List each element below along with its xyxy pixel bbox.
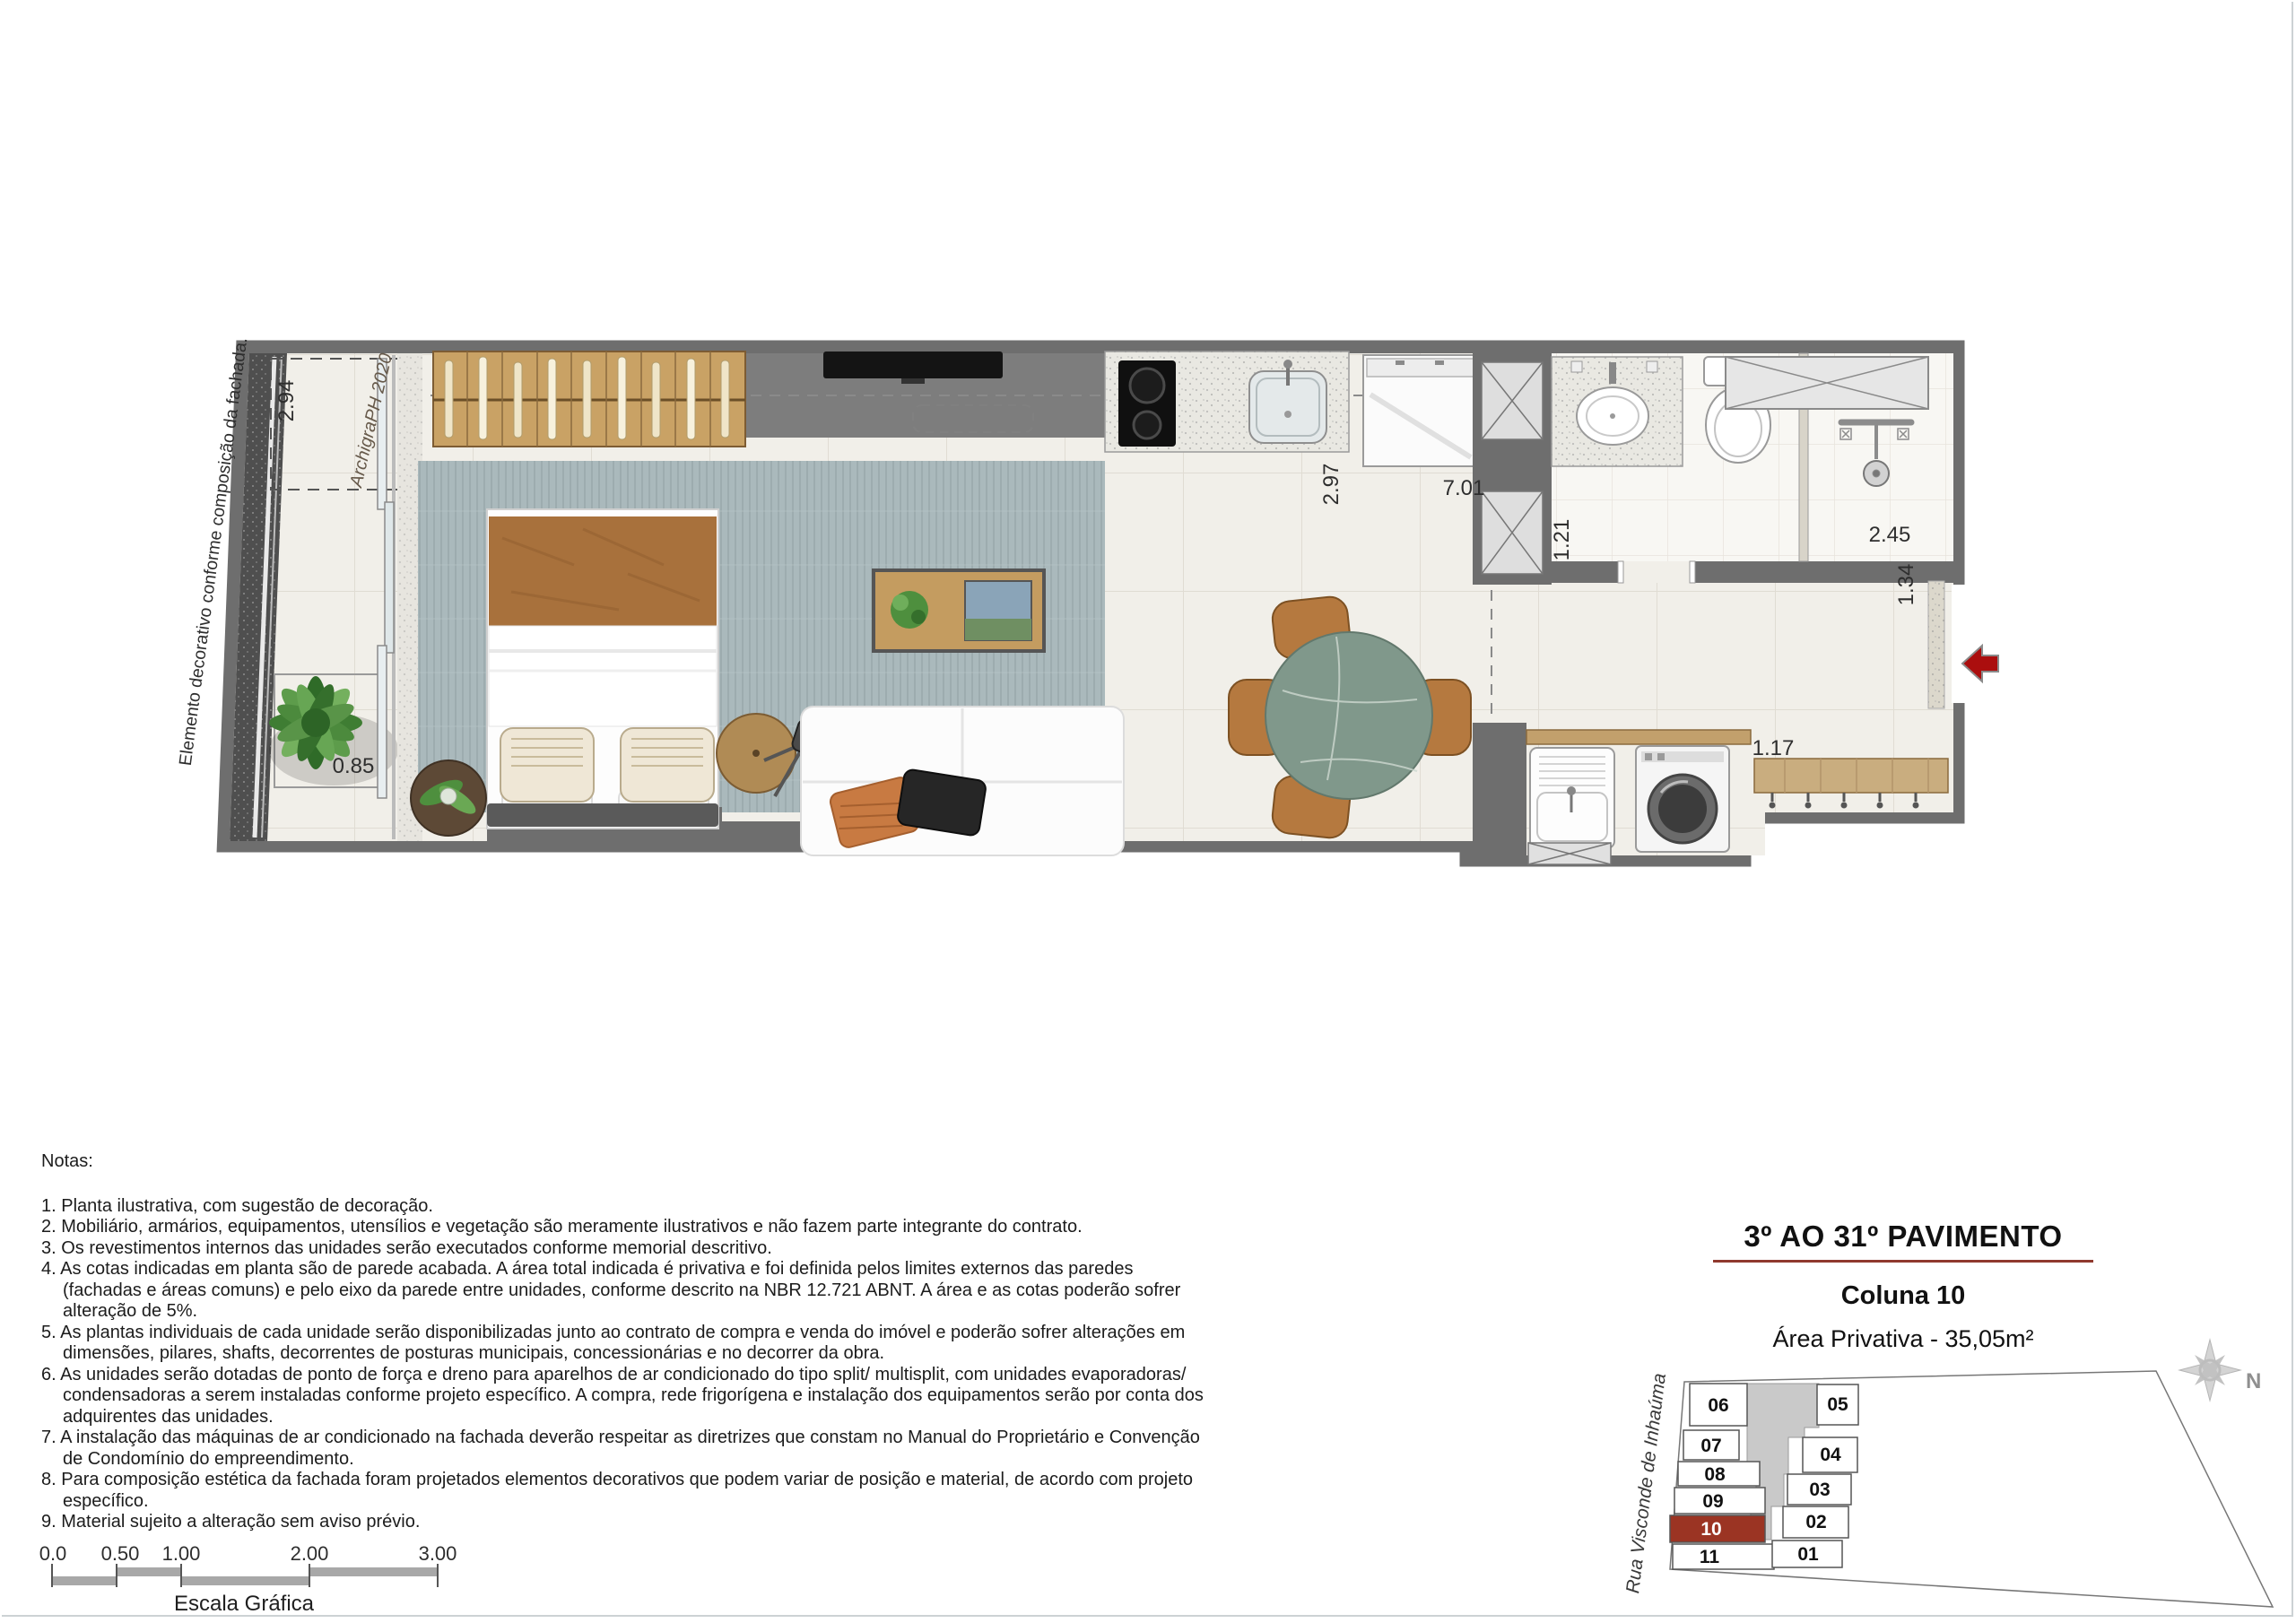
title-underline <box>1713 1260 2093 1263</box>
scale-label: 3.00 <box>419 1542 457 1565</box>
key-unit-11 <box>1673 1544 1774 1569</box>
floor-plan-sheet: 2.94 0.85 2.97 7.01 1.21 2.45 1.34 1.17 … <box>0 0 2296 1623</box>
north-label: N <box>2246 1369 2261 1393</box>
column-label: Coluna 10 <box>1711 1281 2095 1311</box>
wardrobe <box>433 352 745 447</box>
bed-pillow <box>500 728 594 802</box>
bathroom <box>1552 353 1953 583</box>
shaft-box <box>1482 491 1543 574</box>
dim-balcony-box: 2.94 <box>274 380 299 422</box>
note-item: 3. Os revestimentos internos das unidade… <box>41 1238 1207 1260</box>
unit-plan: 2.94 0.85 2.97 7.01 1.21 2.45 1.34 1.17 … <box>176 336 1998 877</box>
north-compass-icon <box>2179 1340 2240 1401</box>
side-table <box>411 760 486 836</box>
street-label: Rua Visconde de Inhaúma <box>1622 1372 1670 1594</box>
scale-bar: 0.0 0.50 1.00 2.00 3.00 Escala Gráfica <box>39 1542 457 1616</box>
info-panel: 3º AO 31º PAVIMENTO Coluna 10 Área Priva… <box>1711 1219 2095 1353</box>
scale-label: 2.00 <box>291 1542 329 1565</box>
note-item: 4. As cotas indicadas em planta são de p… <box>41 1259 1207 1323</box>
entry-reveal-texture <box>1928 581 1944 708</box>
dining-table <box>1265 632 1432 799</box>
dim-shower: 2.45 <box>1869 523 1911 547</box>
private-area-label: Área Privativa - 35,05m² <box>1711 1325 2095 1353</box>
key-unit-label: 08 <box>1704 1464 1726 1485</box>
laundry-shelf <box>1526 730 1751 744</box>
notes-block: Notas: 1. Planta ilustrativa, com sugest… <box>41 1151 1207 1533</box>
notes-heading: Notas: <box>41 1151 1207 1173</box>
scale-label: 1.00 <box>162 1542 201 1565</box>
refrigerator <box>1363 355 1478 466</box>
scale-label: 0.0 <box>39 1542 67 1565</box>
closet-box <box>1726 357 1928 409</box>
bed-pillow <box>621 728 714 802</box>
note-item: 9. Material sujeito a alteração sem avis… <box>41 1512 1207 1533</box>
balcony-sliding-door <box>378 353 422 841</box>
note-item: 5. As plantas individuais de cada unidad… <box>41 1323 1207 1365</box>
key-unit-label: 11 <box>1700 1547 1720 1567</box>
key-unit-label: 07 <box>1700 1436 1721 1456</box>
key-plan: 06 07 08 09 10 11 05 04 03 02 01 Rua Vis… <box>1622 1340 2273 1607</box>
scale-caption: Escala Gráfica <box>174 1592 315 1616</box>
key-unit-label: 05 <box>1827 1394 1848 1415</box>
key-unit-label: 01 <box>1797 1544 1819 1565</box>
entry-opening <box>1952 585 1968 703</box>
washing-machine <box>1636 746 1729 852</box>
laundry <box>1473 723 1751 866</box>
bathroom-vanity <box>1552 357 1683 466</box>
shaft-box <box>1482 362 1543 439</box>
sofa-pillow-black <box>897 768 987 837</box>
shaft-box <box>1528 843 1611 864</box>
key-unit-label: 03 <box>1809 1480 1830 1500</box>
scale-label: 0.50 <box>101 1542 140 1565</box>
key-unit-label: 04 <box>1820 1445 1841 1465</box>
kitchen-counter <box>1105 352 1349 452</box>
kitchen-sink <box>1249 360 1326 443</box>
tv <box>823 352 1003 378</box>
key-unit-label: 09 <box>1702 1491 1723 1512</box>
floor-range-title: 3º AO 31º PAVIMENTO <box>1711 1219 2095 1254</box>
key-unit-label: 02 <box>1805 1512 1826 1532</box>
note-item: 2. Mobiliário, armários, equipamentos, u… <box>41 1217 1207 1238</box>
dim-length: 7.01 <box>1443 476 1485 500</box>
tv-console <box>874 570 1044 651</box>
note-item: 6. As unidades serão dotadas de ponto de… <box>41 1365 1207 1428</box>
key-unit-label: 06 <box>1708 1395 1728 1416</box>
sofa <box>801 707 1124 855</box>
laundry-sink <box>1530 748 1614 848</box>
note-item: 1. Planta ilustrativa, com sugestão de d… <box>41 1196 1207 1218</box>
dim-bench: 1.17 <box>1752 736 1795 760</box>
key-unit-label-highlighted: 10 <box>1700 1519 1721 1540</box>
note-item: 7. A instalação das máquinas de ar condi… <box>41 1428 1207 1470</box>
dim-bath: 1.21 <box>1550 519 1574 561</box>
dim-kitchen: 2.97 <box>1319 464 1344 506</box>
dim-balcony: 0.85 <box>333 754 375 778</box>
cooktop <box>1118 360 1176 447</box>
dim-hall: 1.34 <box>1894 564 1918 606</box>
tv-mount <box>901 378 925 384</box>
note-item: 8. Para composição estética da fachada f… <box>41 1470 1207 1512</box>
